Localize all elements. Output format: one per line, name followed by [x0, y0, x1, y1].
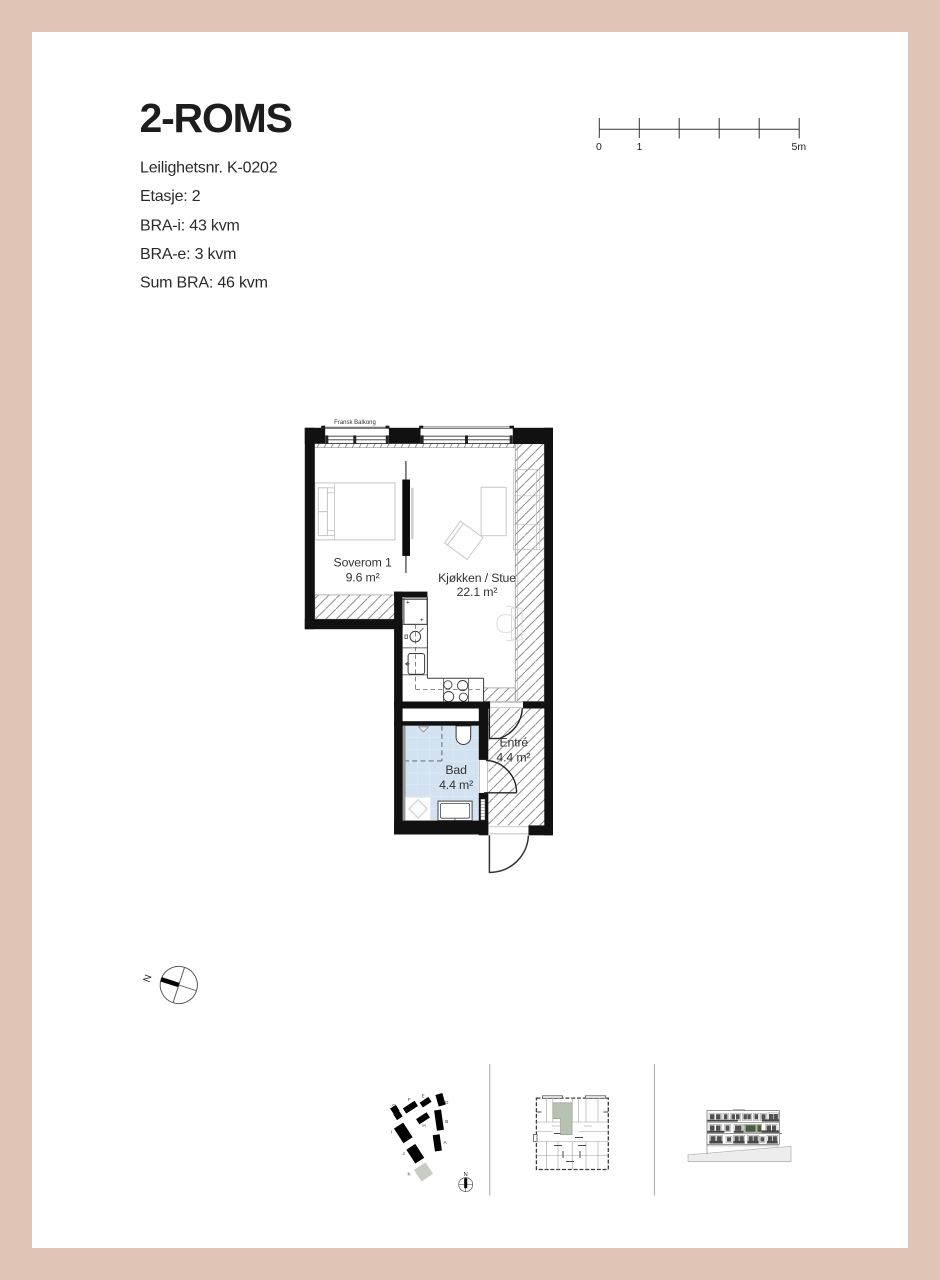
svg-text:0: 0: [596, 141, 602, 153]
svg-text:N: N: [142, 973, 155, 984]
svg-text:Entré: Entré: [499, 736, 528, 750]
svg-text:BRA-e: 3 kvm: BRA-e: 3 kvm: [140, 246, 236, 263]
svg-text:4.4 m²: 4.4 m²: [439, 778, 473, 792]
svg-text:G: G: [392, 1103, 396, 1108]
svg-text:I: I: [391, 1130, 392, 1135]
svg-text:BRA-i: 43 kvm: BRA-i: 43 kvm: [140, 217, 240, 234]
svg-text:B: B: [445, 1119, 448, 1124]
svg-text:K: K: [407, 1172, 411, 1177]
svg-text:Sum BRA: 46 kvm: Sum BRA: 46 kvm: [140, 274, 268, 291]
svg-text:Bad: Bad: [445, 763, 467, 777]
svg-text:J: J: [402, 1151, 404, 1156]
svg-text:E: E: [422, 1094, 425, 1099]
svg-text:Kjøkken / Stue: Kjøkken / Stue: [438, 571, 516, 585]
svg-text:Etasje: 2: Etasje: 2: [140, 188, 201, 205]
svg-text:D: D: [445, 1100, 449, 1105]
svg-text:9.6 m²: 9.6 m²: [346, 571, 380, 585]
svg-text:H: H: [422, 1123, 425, 1128]
svg-text:Soverom 1: Soverom 1: [334, 556, 392, 570]
svg-text:F: F: [408, 1097, 411, 1102]
svg-text:5m: 5m: [792, 141, 807, 153]
svg-text:1: 1: [637, 141, 643, 153]
svg-text:2-ROMS: 2-ROMS: [140, 95, 292, 141]
svg-text:4.4 m²: 4.4 m²: [496, 751, 530, 765]
svg-text:Fransk Balkong: Fransk Balkong: [334, 420, 376, 426]
svg-text:N: N: [464, 1172, 468, 1178]
svg-text:22.1 m²: 22.1 m²: [457, 585, 498, 599]
svg-text:Leilighetsnr. K-0202: Leilighetsnr. K-0202: [140, 159, 278, 176]
svg-text:A: A: [443, 1140, 447, 1145]
